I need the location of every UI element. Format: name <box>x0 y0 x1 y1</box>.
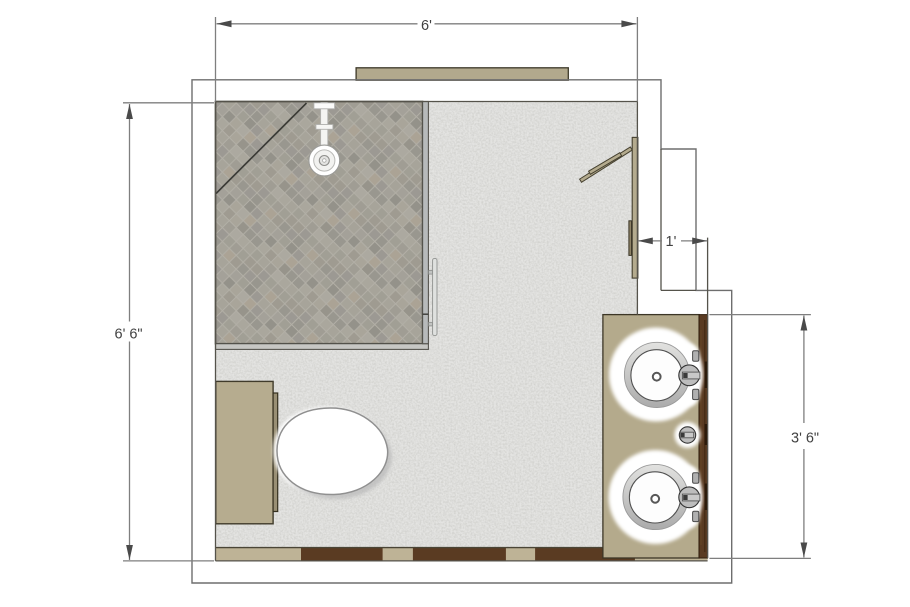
svg-text:3' 6": 3' 6" <box>791 430 819 446</box>
svg-text:6': 6' <box>421 18 432 34</box>
svg-text:6' 6": 6' 6" <box>115 326 143 342</box>
svg-text:1': 1' <box>666 234 677 250</box>
